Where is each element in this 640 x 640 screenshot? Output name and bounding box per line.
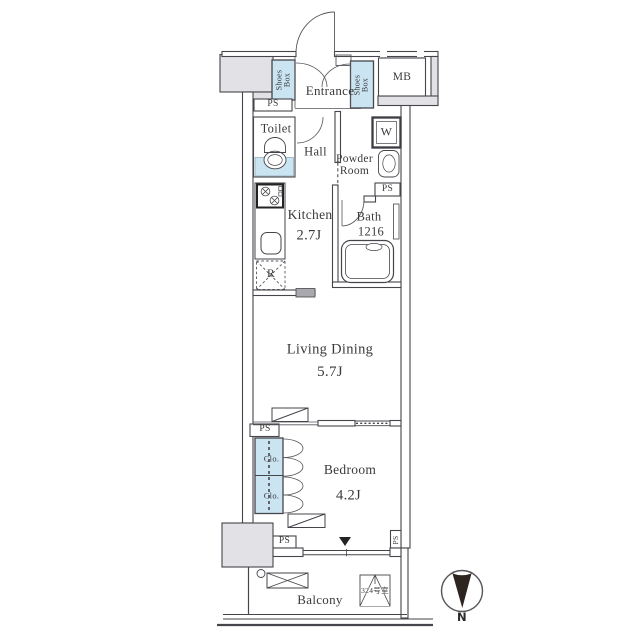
closet-door-arcs xyxy=(283,439,303,513)
sliding-door-leaf-bedroom xyxy=(288,514,325,528)
closet xyxy=(255,438,283,514)
bath-size-label: 1216 xyxy=(358,225,384,238)
room-number-label: 324号室 xyxy=(361,587,389,595)
structural-column xyxy=(222,523,273,567)
ps1-label: PS xyxy=(267,100,278,110)
balcony-label: Balcony xyxy=(297,593,342,607)
entrance-door xyxy=(296,12,351,66)
ps3-label: PS xyxy=(259,425,270,435)
living-dining-size-label: 5.7J xyxy=(317,365,343,381)
kitchen-lower-wall xyxy=(253,289,315,298)
hall-label: Hall xyxy=(304,145,327,158)
powder-room-label: PowderRoom xyxy=(336,152,373,176)
equipment-space-icon xyxy=(267,573,308,588)
washer-label: W xyxy=(381,126,393,139)
ps4-label: PS xyxy=(279,537,290,547)
bath-label: Bath xyxy=(357,210,382,223)
closet-upper-label: Clo. xyxy=(264,454,280,463)
kitchen-size-label: 2.7J xyxy=(297,228,322,243)
kitchen-sink-icon xyxy=(261,233,281,255)
compass-north-label: N xyxy=(457,610,467,622)
ps2-label: PS xyxy=(382,185,393,195)
living-dining-label: Living Dining xyxy=(287,342,373,357)
compass-icon xyxy=(442,571,483,612)
stove-icon xyxy=(257,185,283,208)
meter-box-label: MB xyxy=(393,71,412,83)
toilet-icon xyxy=(264,138,286,169)
ps5-label: PS xyxy=(392,535,400,544)
bathtub-icon xyxy=(342,241,394,283)
bedroom-label: Bedroom xyxy=(324,463,376,477)
closet-lower-label: Clo. xyxy=(264,492,280,501)
bedroom-size-label: 4.2J xyxy=(336,488,361,503)
shoes-box-right-label: ShoesBox xyxy=(354,74,371,95)
refrigerator-label: R xyxy=(267,268,275,280)
toilet-door-arc xyxy=(297,117,323,143)
balcony-window xyxy=(273,548,401,557)
toilet-label: Toilet xyxy=(261,122,292,135)
floorplan-page: ShoesBox Entrance ShoesBox MB PS Toilet … xyxy=(0,0,640,640)
kitchen-label: Kitchen xyxy=(288,208,333,222)
drain-icon xyxy=(257,570,265,578)
window-marker-triangle xyxy=(339,537,351,546)
shoes-box-left-label: ShoesBox xyxy=(275,69,292,90)
sliding-door-leaf-ld xyxy=(272,408,308,422)
entrance-label: Entrance xyxy=(306,84,355,98)
vanity-sink-icon xyxy=(379,151,400,178)
